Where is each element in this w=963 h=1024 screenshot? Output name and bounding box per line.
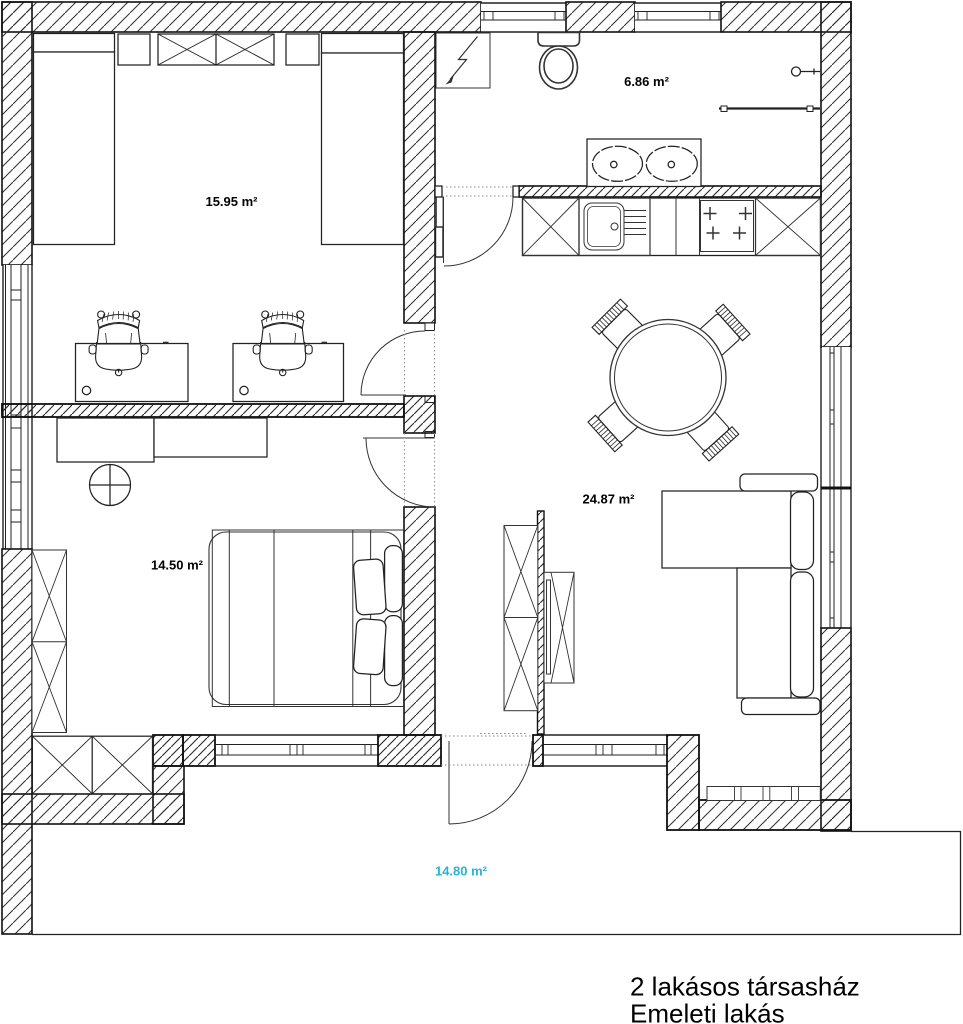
svg-text:14.80 m²: 14.80 m² [435, 863, 488, 878]
svg-text:2 lakásos társasház: 2 lakásos társasház [630, 972, 860, 1002]
svg-text:24.87 m²: 24.87 m² [582, 491, 635, 506]
svg-text:Emeleti lakás: Emeleti lakás [630, 999, 785, 1024]
svg-text:15.95 m²: 15.95 m² [205, 194, 258, 209]
svg-text:6.86 m²: 6.86 m² [624, 74, 669, 89]
svg-text:14.50 m²: 14.50 m² [151, 558, 204, 573]
